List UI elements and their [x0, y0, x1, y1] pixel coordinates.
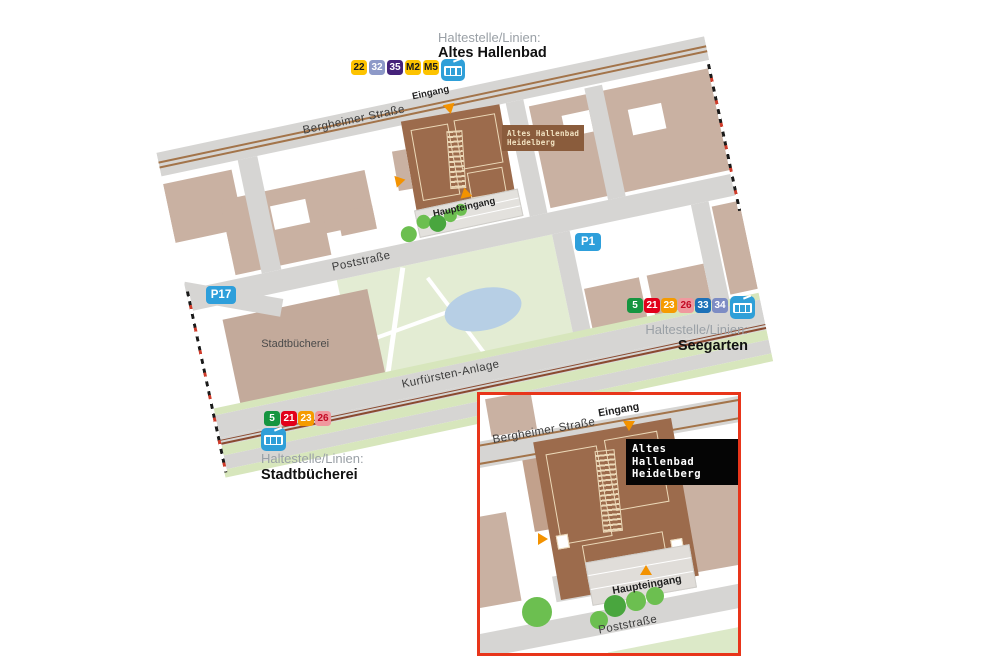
line-badge: 32: [369, 60, 385, 75]
line-badge: 22: [351, 60, 367, 75]
railway-edge-line: [186, 291, 227, 473]
tram-stop-icon: [261, 428, 286, 451]
stop-heading-altes-hallenbad: Haltestelle/Linien:: [438, 30, 541, 45]
stop-name-stadtbuecherei: Stadtbücherei: [261, 467, 358, 483]
stadtbuecherei-building-label: Stadtbücherei: [261, 338, 329, 350]
line-badge: 35: [387, 60, 403, 75]
line-badge: 26: [315, 411, 331, 426]
line-badge: 5: [627, 298, 643, 313]
parking-badge-p1: P1: [575, 233, 601, 251]
sign-line-2: Heidelberg: [507, 138, 579, 147]
inset-detail-map: Bergheimer Straße Eingang Haupteingang P…: [477, 392, 741, 656]
sign-line-1: Altes Hallenbad: [507, 129, 579, 138]
map-page: Stadtbücherei: [0, 0, 1000, 667]
line-badge: 5: [264, 411, 280, 426]
side-entrance-marker-icon: [538, 533, 548, 545]
line-badge: 26: [678, 298, 694, 313]
line-badge: 21: [644, 298, 660, 313]
line-badge: M5: [423, 60, 439, 75]
tram-stop-icon: [441, 59, 465, 81]
tree: [522, 597, 552, 627]
side-entrance-marker-icon: [394, 174, 406, 188]
haupteingang-marker-icon: [640, 565, 652, 575]
parking-badge-p17: P17: [206, 286, 236, 304]
eingang-marker-icon: [623, 421, 635, 431]
tram-stop-icon: [730, 296, 755, 319]
line-badge: 23: [298, 411, 314, 426]
line-badge: M2: [405, 60, 421, 75]
building: [477, 512, 521, 608]
line-badge: 23: [661, 298, 677, 313]
altes-hallenbad-sign: Altes Hallenbad Heidelberg: [626, 439, 738, 485]
stop-heading-stadtbuecherei: Haltestelle/Linien:: [261, 451, 364, 466]
line-badge: 34: [712, 298, 728, 313]
stop-heading-seegarten: Haltestelle/Linien:: [605, 322, 748, 337]
sign-line-2: Heidelberg: [632, 468, 732, 481]
line-badge: 33: [695, 298, 711, 313]
sign-line-1: Altes Hallenbad: [632, 443, 732, 468]
altes-hallenbad-sign: Altes Hallenbad Heidelberg: [502, 125, 584, 151]
line-badge: 21: [281, 411, 297, 426]
door-icon: [556, 534, 570, 550]
tree: [604, 595, 626, 617]
stop-name-seegarten: Seegarten: [605, 338, 748, 354]
